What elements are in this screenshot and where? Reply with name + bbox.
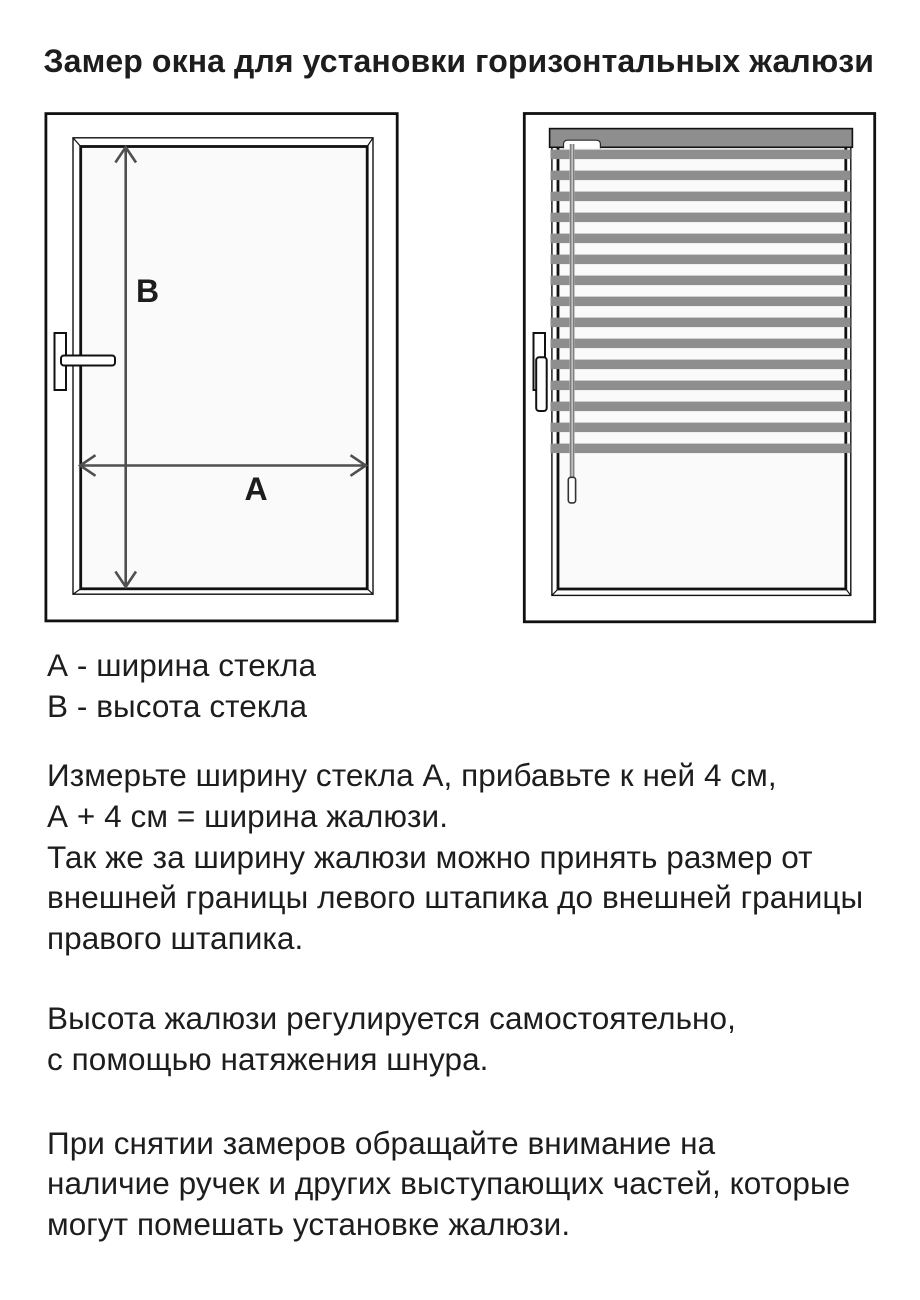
svg-text:А: А bbox=[245, 471, 268, 507]
svg-text:В: В bbox=[136, 273, 159, 309]
